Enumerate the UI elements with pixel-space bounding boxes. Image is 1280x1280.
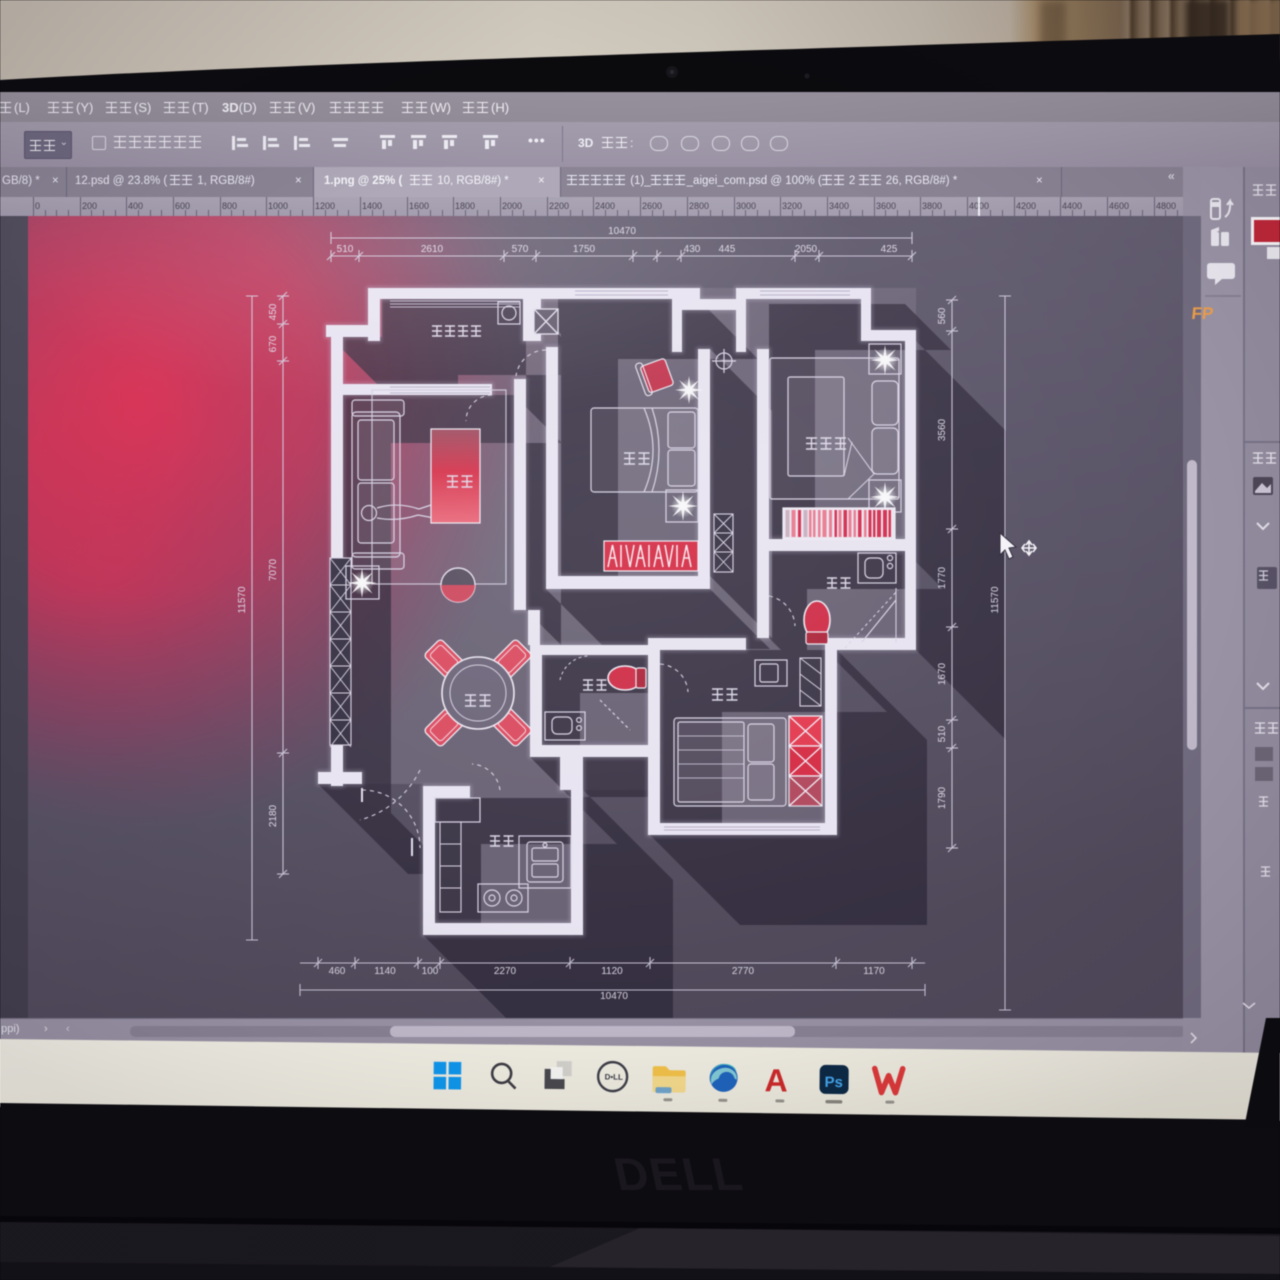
svg-text:DELL: DELL bbox=[609, 1148, 748, 1199]
svg-text:Ps: Ps bbox=[824, 1074, 843, 1091]
svg-text:FP: FP bbox=[1191, 304, 1215, 323]
svg-text:D•LL: D•LL bbox=[605, 1073, 624, 1082]
svg-text:A: A bbox=[764, 1062, 787, 1098]
